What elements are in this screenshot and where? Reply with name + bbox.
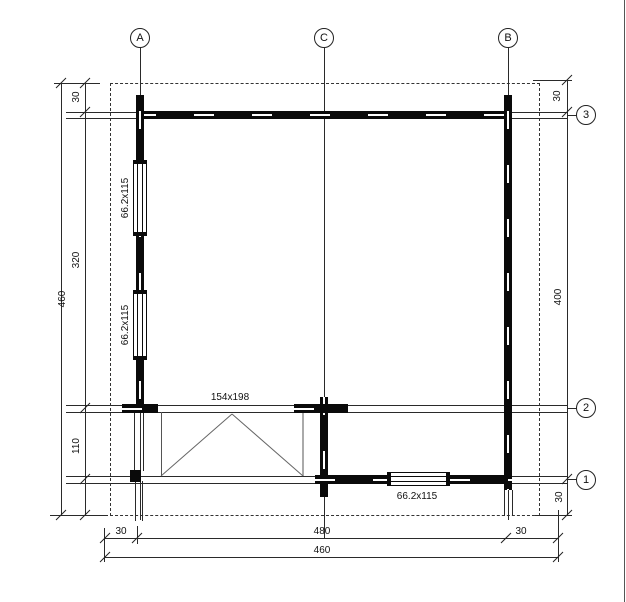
axis3-face-lines-right bbox=[512, 112, 567, 119]
wall-axis1-right-segment bbox=[450, 475, 512, 484]
axis-bubble-a: A bbox=[130, 28, 150, 48]
wall-stub-a-top bbox=[136, 95, 144, 111]
porch-post-left-upper bbox=[134, 411, 144, 471]
dim-connector-bottom-left bbox=[104, 528, 105, 562]
dim-connector-right-top bbox=[533, 80, 572, 81]
axis-bubble-c-label: C bbox=[320, 32, 328, 44]
label-door-front: 154x198 bbox=[211, 393, 249, 403]
label-window-left-upper: 66.2x115 bbox=[121, 178, 131, 218]
dim-bottom-right-overhang: 30 bbox=[515, 527, 526, 537]
axis-bubble-a-label: A bbox=[136, 32, 143, 44]
wall-stub-b-top bbox=[504, 95, 512, 111]
dim-left-upper: 320 bbox=[72, 252, 82, 269]
axis-bubble-1-label: 1 bbox=[583, 474, 589, 486]
dim-right-overhang-bottom: 30 bbox=[555, 491, 565, 502]
axis-bubble-3-label: 3 bbox=[583, 109, 589, 121]
dim-right-overhang-top: 30 bbox=[553, 90, 563, 101]
porch-corner-block bbox=[130, 470, 141, 482]
axis3-face-lines-left bbox=[66, 112, 136, 119]
dim-bottom-main: 480 bbox=[314, 527, 331, 537]
floor-plan-drawing: A C B 3 2 1 30 320 110 460 30 400 30 30 … bbox=[0, 0, 626, 602]
label-window-left-lower: 66.2x115 bbox=[121, 305, 131, 345]
axis-bubble-2: 2 bbox=[576, 398, 596, 418]
porch-post-left-lower bbox=[135, 481, 143, 521]
dim-line-bottom-1 bbox=[104, 538, 558, 539]
porch-post-right bbox=[504, 490, 513, 516]
wall-axis2-block-a bbox=[122, 404, 158, 413]
axis-bubble-3: 3 bbox=[576, 105, 596, 125]
window-left-upper bbox=[133, 160, 147, 236]
dim-line-right bbox=[567, 80, 568, 515]
sheet-border bbox=[624, 0, 625, 602]
window-left-lower bbox=[133, 290, 147, 360]
dim-bottom-total: 460 bbox=[314, 546, 331, 556]
axis-bubble-b-label: B bbox=[504, 32, 511, 44]
dim-connector-right-bottom bbox=[535, 515, 572, 516]
dim-left-lower: 110 bbox=[72, 438, 82, 454]
dim-right-main: 400 bbox=[554, 289, 564, 306]
dim-connector-bottom-a bbox=[137, 526, 138, 544]
dim-left-overhang: 30 bbox=[72, 91, 82, 102]
axis-bubble-1: 1 bbox=[576, 470, 596, 490]
dim-line-left-inner bbox=[85, 83, 86, 515]
axis-bubble-c: C bbox=[314, 28, 334, 48]
dim-bottom-left-overhang: 30 bbox=[115, 527, 126, 537]
window-bottom bbox=[387, 472, 450, 486]
wall-right bbox=[504, 111, 512, 490]
dim-left-total: 460 bbox=[58, 291, 68, 308]
dim-connector-left-top bbox=[54, 83, 100, 84]
door-right-jamb bbox=[302, 412, 304, 476]
wall-axis1-left-segment bbox=[315, 475, 387, 484]
dim-connector-bottom-right bbox=[558, 510, 559, 562]
wall-left bbox=[136, 111, 144, 412]
dim-line-bottom-2 bbox=[104, 557, 558, 558]
axis-bubble-b: B bbox=[498, 28, 518, 48]
wall-top bbox=[136, 111, 512, 119]
label-window-bottom: 66.2x115 bbox=[397, 492, 437, 502]
door-left-jamb bbox=[161, 412, 162, 476]
axis-bubble-2-label: 2 bbox=[583, 402, 589, 414]
wall-axis2-block-c bbox=[294, 404, 348, 413]
dim-connector-left-bottom bbox=[50, 515, 108, 516]
